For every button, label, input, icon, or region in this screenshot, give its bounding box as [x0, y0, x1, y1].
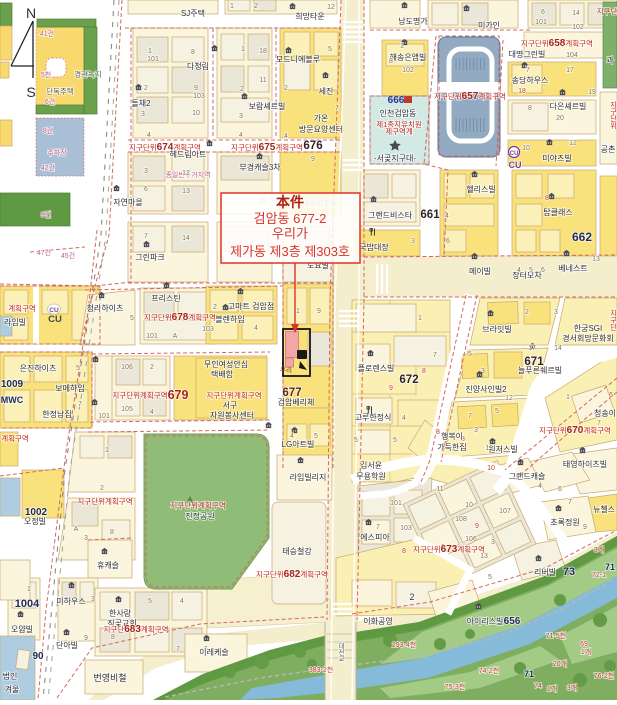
svg-text:번영비철: 번영비철	[93, 673, 126, 683]
svg-text:17: 17	[566, 67, 574, 74]
svg-text:2: 2	[100, 485, 104, 492]
svg-text:3개: 3개	[594, 545, 604, 554]
svg-text:3: 3	[491, 539, 495, 546]
svg-text:101: 101	[535, 19, 547, 26]
svg-text:41건: 41건	[40, 29, 54, 38]
svg-text:13: 13	[182, 188, 190, 195]
svg-text:지구단위675계획구역: 지구단위675계획구역	[231, 142, 303, 153]
svg-text:17: 17	[528, 345, 536, 352]
svg-text:18: 18	[259, 48, 267, 55]
svg-text:초록정원: 초록정원	[550, 517, 579, 527]
svg-text:지구단: 지구단	[597, 6, 617, 16]
svg-text:은진하이츠: 은진하이츠	[20, 363, 57, 373]
svg-text:6: 6	[609, 392, 613, 399]
svg-text:해송은앰빌: 해송은앰빌	[390, 52, 427, 62]
svg-text:진정공원: 진정공원	[185, 511, 214, 521]
svg-text:플로렌스빌: 플로렌스빌	[358, 363, 395, 373]
svg-text:9건: 9건	[41, 210, 51, 219]
svg-text:8: 8	[436, 429, 440, 436]
svg-text:1004: 1004	[15, 598, 40, 610]
svg-text:4: 4	[180, 598, 184, 605]
svg-text:12: 12	[327, 4, 335, 11]
svg-text:9: 9	[194, 85, 198, 92]
svg-text:모드니에블루: 모드니에블루	[276, 54, 320, 64]
svg-text:672: 672	[399, 374, 418, 386]
svg-text:미가인: 미가인	[478, 20, 500, 30]
svg-text:7: 7	[433, 352, 437, 359]
svg-text:아이리스빌: 아이리스빌	[467, 616, 504, 626]
svg-text:1: 1	[148, 48, 152, 55]
svg-text:108: 108	[455, 516, 467, 523]
svg-text:자연마을: 자연마을	[113, 198, 142, 207]
svg-text:무인여성안심: 무인여성안심	[204, 359, 248, 369]
svg-text:제가동 제3층 제303호: 제가동 제3층 제303호	[230, 244, 350, 259]
svg-text:101: 101	[390, 500, 402, 507]
svg-text:7: 7	[335, 105, 339, 112]
svg-text:지구단위계획구역: 지구단위계획구역	[77, 496, 132, 506]
svg-text:행복이: 행복이	[441, 431, 463, 441]
svg-text:7: 7	[568, 499, 572, 506]
svg-text:송당하우스: 송당하우스	[512, 75, 549, 85]
svg-text:2: 2	[213, 304, 217, 311]
svg-text:4: 4	[402, 415, 406, 422]
svg-text:102: 102	[402, 67, 414, 74]
svg-text:4: 4	[284, 133, 288, 140]
svg-text:고마트 검암점: 고마트 검암점	[228, 301, 274, 311]
svg-text:대명그린빌: 대명그린빌	[509, 49, 546, 59]
svg-text:1: 1	[105, 447, 109, 454]
svg-text:3: 3	[239, 113, 243, 120]
svg-text:브라잇빌: 브라잇빌	[482, 324, 511, 334]
svg-text:2: 2	[409, 592, 414, 602]
svg-text:그랜드캐슬: 그랜드캐슬	[509, 471, 546, 481]
svg-text:헤드림아트: 헤드림아트	[170, 149, 207, 159]
svg-text:4: 4	[254, 325, 258, 332]
svg-text:8: 8	[528, 105, 532, 112]
svg-text:1009: 1009	[1, 379, 24, 390]
svg-text:경관녹지: 경관녹지	[74, 69, 102, 79]
svg-text:한사랑: 한사랑	[109, 608, 132, 618]
svg-text:76-2천: 76-2천	[594, 671, 614, 680]
svg-text:돌채2: 돌채2	[131, 98, 151, 108]
svg-text:8: 8	[545, 195, 549, 202]
svg-text:6: 6	[144, 186, 148, 193]
svg-text:다청림: 다청림	[187, 61, 209, 71]
svg-text:CU: CU	[510, 151, 519, 157]
svg-text:CU: CU	[48, 314, 62, 325]
svg-text:주차장: 주차장	[47, 148, 67, 157]
svg-text:19: 19	[588, 89, 596, 96]
svg-text:2: 2	[284, 85, 288, 92]
svg-text:지구단위계획구역: 지구단위계획구역	[170, 500, 225, 510]
svg-text:14: 14	[182, 235, 190, 242]
svg-text:지구단: 지구단	[610, 309, 617, 331]
svg-text:남도명가: 남도명가	[398, 16, 428, 26]
svg-text:4: 4	[538, 483, 542, 490]
svg-text:늘푸른쉐르빌: 늘푸른쉐르빌	[518, 365, 562, 375]
svg-text:보람셰르빌: 보람셰르빌	[249, 101, 286, 111]
svg-text:메이빌: 메이빌	[469, 266, 491, 276]
svg-text:3: 3	[411, 238, 415, 245]
svg-text:이화공영: 이화공영	[363, 616, 392, 626]
svg-text:자원봉사센터: 자원봉사센터	[210, 410, 254, 420]
svg-text:661: 661	[420, 209, 440, 221]
svg-text:8: 8	[402, 548, 406, 555]
svg-text:지구단위682계획구역: 지구단위682계획구역	[256, 569, 328, 580]
svg-text:103: 103	[202, 326, 214, 333]
svg-text:74-2천: 74-2천	[479, 666, 499, 675]
svg-text:8: 8	[110, 529, 114, 536]
svg-text:지구단위657계획구역: 지구단위657계획구역	[434, 91, 506, 102]
svg-text:12: 12	[569, 140, 577, 147]
svg-text:라임빌리지: 라임빌리지	[290, 472, 327, 482]
svg-text:진양사인빌2: 진양사인빌2	[465, 384, 507, 394]
svg-text:2: 2	[525, 309, 529, 316]
svg-text:104: 104	[566, 52, 578, 59]
svg-text:6: 6	[541, 267, 545, 274]
svg-text:제구역계: 제구역계	[385, 126, 413, 136]
svg-text:4: 4	[445, 213, 449, 220]
svg-text:국밥대장: 국밥대장	[359, 242, 389, 252]
svg-text:6: 6	[541, 9, 545, 16]
svg-text:4: 4	[239, 132, 243, 139]
svg-text:뉴첼스: 뉴첼스	[593, 504, 615, 514]
svg-text:666: 666	[388, 95, 405, 106]
svg-text:102: 102	[572, 24, 584, 31]
svg-text:계획구역: 계획구역	[1, 433, 29, 443]
svg-text:지구단위658계획구역: 지구단위658계획구역	[521, 38, 593, 49]
svg-text:A: A	[74, 526, 79, 533]
svg-text:4: 4	[147, 132, 151, 139]
svg-text:CU: CU	[509, 160, 522, 170]
svg-text:3개: 3개	[567, 683, 577, 692]
svg-text:8: 8	[191, 49, 195, 56]
svg-text:2: 2	[240, 86, 244, 93]
svg-text:원저스빌: 원저스빌	[488, 444, 517, 454]
svg-text:10: 10	[192, 110, 200, 117]
svg-text:3: 3	[84, 535, 88, 542]
svg-text:4: 4	[517, 267, 521, 274]
svg-text:1: 1	[27, 586, 31, 593]
svg-text:SJ주택: SJ주택	[181, 8, 205, 18]
svg-text:오얌빌: 오얌빌	[11, 624, 33, 634]
svg-text:9: 9	[475, 523, 479, 530]
svg-text:7: 7	[176, 646, 180, 653]
svg-text:10: 10	[465, 502, 473, 509]
svg-text:13: 13	[592, 256, 600, 263]
svg-text:1: 1	[296, 308, 300, 315]
svg-text:45건: 45건	[61, 251, 75, 260]
svg-text:7: 7	[468, 413, 472, 420]
svg-text:블렌하임: 블렌하임	[215, 314, 244, 324]
svg-text:662: 662	[572, 230, 592, 244]
svg-text:11: 11	[436, 486, 443, 493]
svg-text:73: 73	[563, 566, 575, 578]
svg-text:5천: 5천	[41, 70, 51, 79]
svg-text:6: 6	[446, 238, 450, 245]
svg-text:단아빌: 단아빌	[56, 640, 78, 650]
svg-text:A: A	[173, 333, 178, 340]
svg-text:CU: CU	[49, 307, 59, 314]
svg-text:69: 69	[580, 641, 588, 648]
svg-text:13: 13	[480, 553, 488, 560]
svg-text:5: 5	[354, 437, 358, 444]
svg-text:단독주택: 단독주택	[46, 86, 74, 96]
svg-text:8: 8	[422, 368, 426, 375]
svg-text:1: 1	[566, 394, 570, 401]
svg-text:103: 103	[193, 93, 205, 100]
svg-text:지구단위673계획구역: 지구단위673계획구역	[413, 544, 485, 555]
svg-text:경서회망문화회: 경서회망문화회	[562, 333, 614, 343]
svg-text:방문요양센터: 방문요양센터	[299, 124, 343, 134]
svg-text:세진: 세진	[319, 86, 334, 96]
svg-text:10: 10	[522, 145, 530, 152]
svg-text:5: 5	[393, 437, 397, 444]
svg-text:태승철강: 태승철강	[282, 546, 312, 556]
svg-text:6: 6	[558, 486, 562, 493]
svg-text:에스피아: 에스피아	[360, 532, 390, 542]
svg-text:7: 7	[597, 420, 601, 427]
svg-text:3: 3	[91, 596, 95, 603]
svg-text:3: 3	[141, 111, 145, 118]
svg-text:3: 3	[144, 168, 148, 175]
svg-text:9: 9	[84, 635, 88, 642]
svg-text:무용학원: 무용학원	[356, 471, 385, 481]
svg-text:한정남집: 한정남집	[42, 409, 71, 419]
svg-text:3: 3	[474, 427, 478, 434]
svg-text:101: 101	[147, 56, 159, 63]
svg-text:미하우스: 미하우스	[56, 596, 85, 606]
svg-text:검암베리체: 검암베리체	[278, 397, 315, 407]
svg-text:2: 2	[150, 364, 154, 371]
svg-text:5: 5	[468, 351, 472, 358]
svg-text:72-1: 72-1	[592, 572, 606, 579]
svg-text:9: 9	[389, 385, 393, 392]
svg-text:태영하이츠빌: 태영하이츠빌	[563, 459, 607, 469]
svg-text:-서곶지구대-: -서곶지구대-	[374, 154, 416, 163]
svg-text:20개: 20개	[553, 659, 567, 668]
svg-text:1개: 1개	[581, 647, 591, 656]
svg-text:한궁SGI: 한궁SGI	[574, 324, 603, 333]
svg-text:71: 71	[524, 669, 534, 679]
svg-text:법인: 법인	[3, 671, 18, 681]
svg-text:1개: 1개	[547, 684, 557, 693]
svg-text:1: 1	[241, 46, 245, 53]
svg-text:휴캐슬: 휴캐슬	[97, 560, 119, 570]
svg-text:5: 5	[495, 408, 499, 415]
svg-text:6건: 6건	[45, 97, 55, 106]
svg-text:8건: 8건	[43, 126, 53, 135]
svg-text:103: 103	[400, 525, 412, 532]
svg-text:대전교: 대전교	[337, 642, 345, 662]
svg-text:라임빌: 라임빌	[4, 317, 26, 327]
svg-text:14: 14	[554, 345, 562, 352]
svg-text:5: 5	[314, 433, 318, 440]
svg-text:그린파크: 그린파크	[135, 252, 164, 262]
svg-text:헬리스빌: 헬리스빌	[466, 184, 495, 194]
svg-text:과: 과	[606, 56, 614, 65]
svg-text:20: 20	[556, 115, 564, 122]
svg-text:5: 5	[76, 365, 80, 372]
svg-text:9: 9	[317, 308, 321, 315]
svg-text:7: 7	[376, 524, 380, 531]
svg-text:프리스틴: 프리스틴	[151, 293, 180, 303]
svg-text:14: 14	[572, 10, 580, 17]
svg-text:MWC: MWC	[1, 395, 24, 405]
svg-text:101: 101	[98, 413, 110, 420]
svg-text:미야즈빌: 미야즈빌	[542, 153, 571, 163]
svg-text:10: 10	[487, 465, 495, 472]
svg-text:8: 8	[111, 634, 115, 641]
svg-text:3: 3	[554, 309, 558, 316]
svg-text:18: 18	[518, 88, 526, 95]
svg-text:11: 11	[259, 77, 266, 84]
svg-text:383-2천: 383-2천	[309, 665, 333, 674]
svg-text:5: 5	[130, 315, 134, 322]
svg-text:청라하이츠: 청라하이츠	[87, 303, 124, 313]
svg-text:지구단위: 지구단위	[610, 100, 617, 130]
svg-text:7: 7	[78, 401, 82, 408]
svg-text:90: 90	[32, 651, 44, 662]
svg-text:676: 676	[303, 140, 322, 152]
svg-text:1: 1	[400, 43, 404, 50]
svg-text:고루한정식: 고루한정식	[355, 412, 392, 422]
svg-text:47건: 47건	[37, 248, 51, 257]
svg-text:107: 107	[499, 508, 511, 515]
svg-text:지구단위계획구역: 지구단위계획구역	[206, 390, 261, 400]
svg-text:S: S	[26, 84, 35, 100]
svg-text:겨울: 겨울	[5, 685, 20, 694]
svg-text:679: 679	[168, 388, 189, 402]
svg-text:5: 5	[488, 574, 492, 581]
svg-text:105: 105	[121, 406, 133, 413]
svg-text:12: 12	[505, 395, 513, 402]
svg-text:가온: 가온	[314, 114, 329, 123]
svg-text:101: 101	[146, 333, 158, 340]
svg-text:1: 1	[230, 3, 234, 10]
svg-text:이레케슬: 이레케슬	[199, 647, 228, 657]
svg-text:탑클래스: 탑클래스	[543, 208, 572, 217]
svg-text:9: 9	[311, 156, 315, 163]
svg-text:그랜드비스타: 그랜드비스타	[368, 210, 413, 220]
svg-text:106: 106	[121, 364, 133, 371]
svg-text:5: 5	[148, 598, 152, 605]
svg-text:보메하임: 보메하임	[55, 383, 84, 393]
svg-text:우리: 우리	[280, 365, 292, 374]
svg-text:71-5천: 71-5천	[546, 631, 566, 640]
svg-text:5: 5	[328, 46, 332, 53]
svg-text:부경캐슬3차: 부경캐슬3차	[239, 162, 281, 172]
svg-text:42건: 42건	[41, 163, 55, 172]
svg-text:서구: 서구	[223, 401, 238, 410]
svg-text:本件: 本件	[276, 194, 304, 210]
svg-text:4: 4	[290, 433, 294, 440]
svg-text:74: 74	[534, 683, 542, 690]
svg-text:12: 12	[182, 170, 190, 177]
svg-text:검암동 677-2: 검암동 677-2	[254, 211, 327, 226]
svg-text:4: 4	[150, 409, 154, 416]
svg-text:7: 7	[144, 233, 148, 240]
svg-text:656: 656	[504, 616, 521, 627]
svg-text:공촌: 공촌	[601, 145, 616, 154]
svg-text:75-3천: 75-3천	[445, 682, 465, 691]
svg-text:베네스트: 베네스트	[558, 264, 587, 273]
svg-text:2: 2	[144, 85, 148, 92]
svg-text:리버빌: 리버빌	[534, 567, 556, 577]
svg-text:인천검암동: 인천검암동	[380, 108, 417, 118]
svg-text:N: N	[26, 5, 36, 21]
svg-text:지구단위계획구역: 지구단위계획구역	[112, 390, 167, 400]
svg-text:가득한집: 가득한집	[437, 442, 466, 452]
svg-text:지구단위678계획구역: 지구단위678계획구역	[144, 312, 216, 323]
svg-text:106: 106	[465, 536, 477, 543]
svg-text:2: 2	[254, 3, 258, 10]
svg-text:택배함: 택배함	[211, 369, 234, 379]
svg-text:김서윤: 김서윤	[360, 460, 382, 470]
svg-text:8: 8	[389, 58, 393, 65]
svg-text:5: 5	[529, 267, 533, 274]
svg-text:청송이: 청송이	[594, 408, 616, 418]
svg-text:우리가: 우리가	[272, 226, 308, 241]
svg-text:오정빌: 오정빌	[24, 516, 46, 526]
svg-text:LG아트빌: LG아트빌	[282, 439, 315, 449]
svg-text:다은셰르빌: 다은셰르빌	[550, 101, 587, 111]
svg-text:희망타운: 희망타운	[295, 11, 324, 21]
svg-text:9: 9	[583, 524, 587, 531]
svg-text:계획구역: 계획구역	[8, 303, 36, 313]
svg-text:1: 1	[418, 315, 422, 322]
svg-text:71: 71	[605, 562, 615, 572]
svg-text:293-4천: 293-4천	[392, 640, 416, 649]
svg-text:7: 7	[526, 67, 530, 74]
